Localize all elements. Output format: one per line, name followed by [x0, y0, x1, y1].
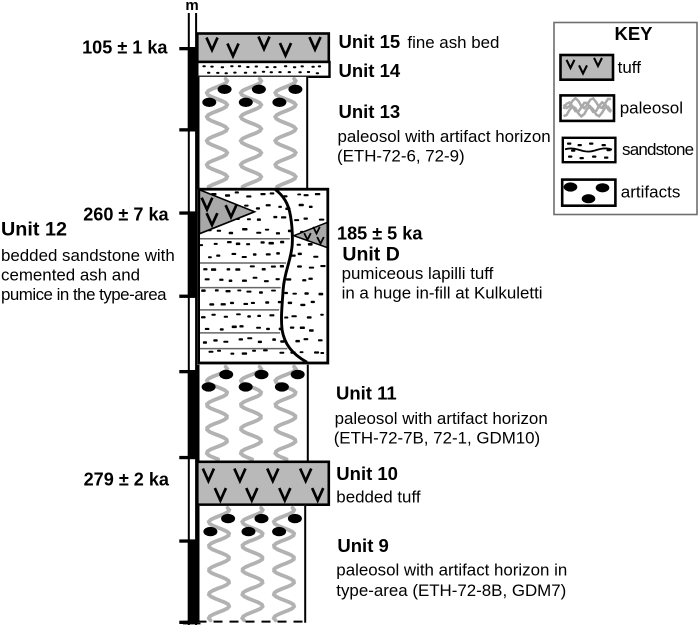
svg-text:cemented ash and: cemented ash and: [1, 265, 140, 284]
svg-text:paleosol with artifact horizon: paleosol with artifact horizon: [338, 127, 551, 146]
svg-text:Unit 11: Unit 11: [336, 382, 397, 403]
svg-text:artifacts: artifacts: [621, 182, 681, 201]
svg-text:paleosol: paleosol: [620, 99, 683, 118]
svg-text:(ETH-72-6, 72-9): (ETH-72-6, 72-9): [337, 146, 465, 165]
svg-text:bedded sandstone with: bedded sandstone with: [1, 246, 175, 265]
svg-text:279 ± 2 ka: 279 ± 2 ka: [84, 470, 170, 490]
svg-text:m: m: [185, 0, 198, 14]
svg-text:260 ± 7 ka: 260 ± 7 ka: [83, 204, 169, 224]
svg-text:KEY: KEY: [614, 23, 653, 44]
svg-text:185 ± 5 ka: 185 ± 5 ka: [337, 224, 423, 244]
svg-text:105 ± 1 ka: 105 ± 1 ka: [82, 38, 168, 58]
svg-text:type-area (ETH-72-8B, GDM7): type-area (ETH-72-8B, GDM7): [336, 581, 566, 600]
svg-text:Unit 13: Unit 13: [339, 101, 401, 122]
svg-text:Unit 14: Unit 14: [339, 60, 401, 81]
svg-text:Unit 12: Unit 12: [1, 218, 67, 240]
svg-text:pumiceous lapilli tuff: pumiceous lapilli tuff: [342, 264, 494, 283]
svg-text:in a huge in-fill at Kulkulett: in a huge in-fill at Kulkuletti: [342, 284, 543, 303]
svg-text:Unit 10: Unit 10: [336, 463, 398, 484]
svg-text:tuff: tuff: [618, 58, 642, 77]
svg-text:Unit 15 fine ash bed: Unit 15 fine ash bed: [339, 31, 500, 52]
svg-text:Unit 9: Unit 9: [337, 535, 388, 556]
svg-text:paleosol with artifact horizon: paleosol with artifact horizon in: [336, 560, 567, 579]
svg-text:Unit D: Unit D: [342, 243, 399, 265]
svg-text:paleosol with artifact horizon: paleosol with artifact horizon: [335, 409, 548, 428]
svg-text:pumice in the type-area: pumice in the type-area: [1, 285, 167, 304]
svg-text:bedded tuff: bedded tuff: [336, 487, 421, 506]
svg-text:(ETH-72-7B, 72-1, GDM10): (ETH-72-7B, 72-1, GDM10): [334, 428, 541, 447]
svg-text:sandstone: sandstone: [622, 140, 694, 159]
